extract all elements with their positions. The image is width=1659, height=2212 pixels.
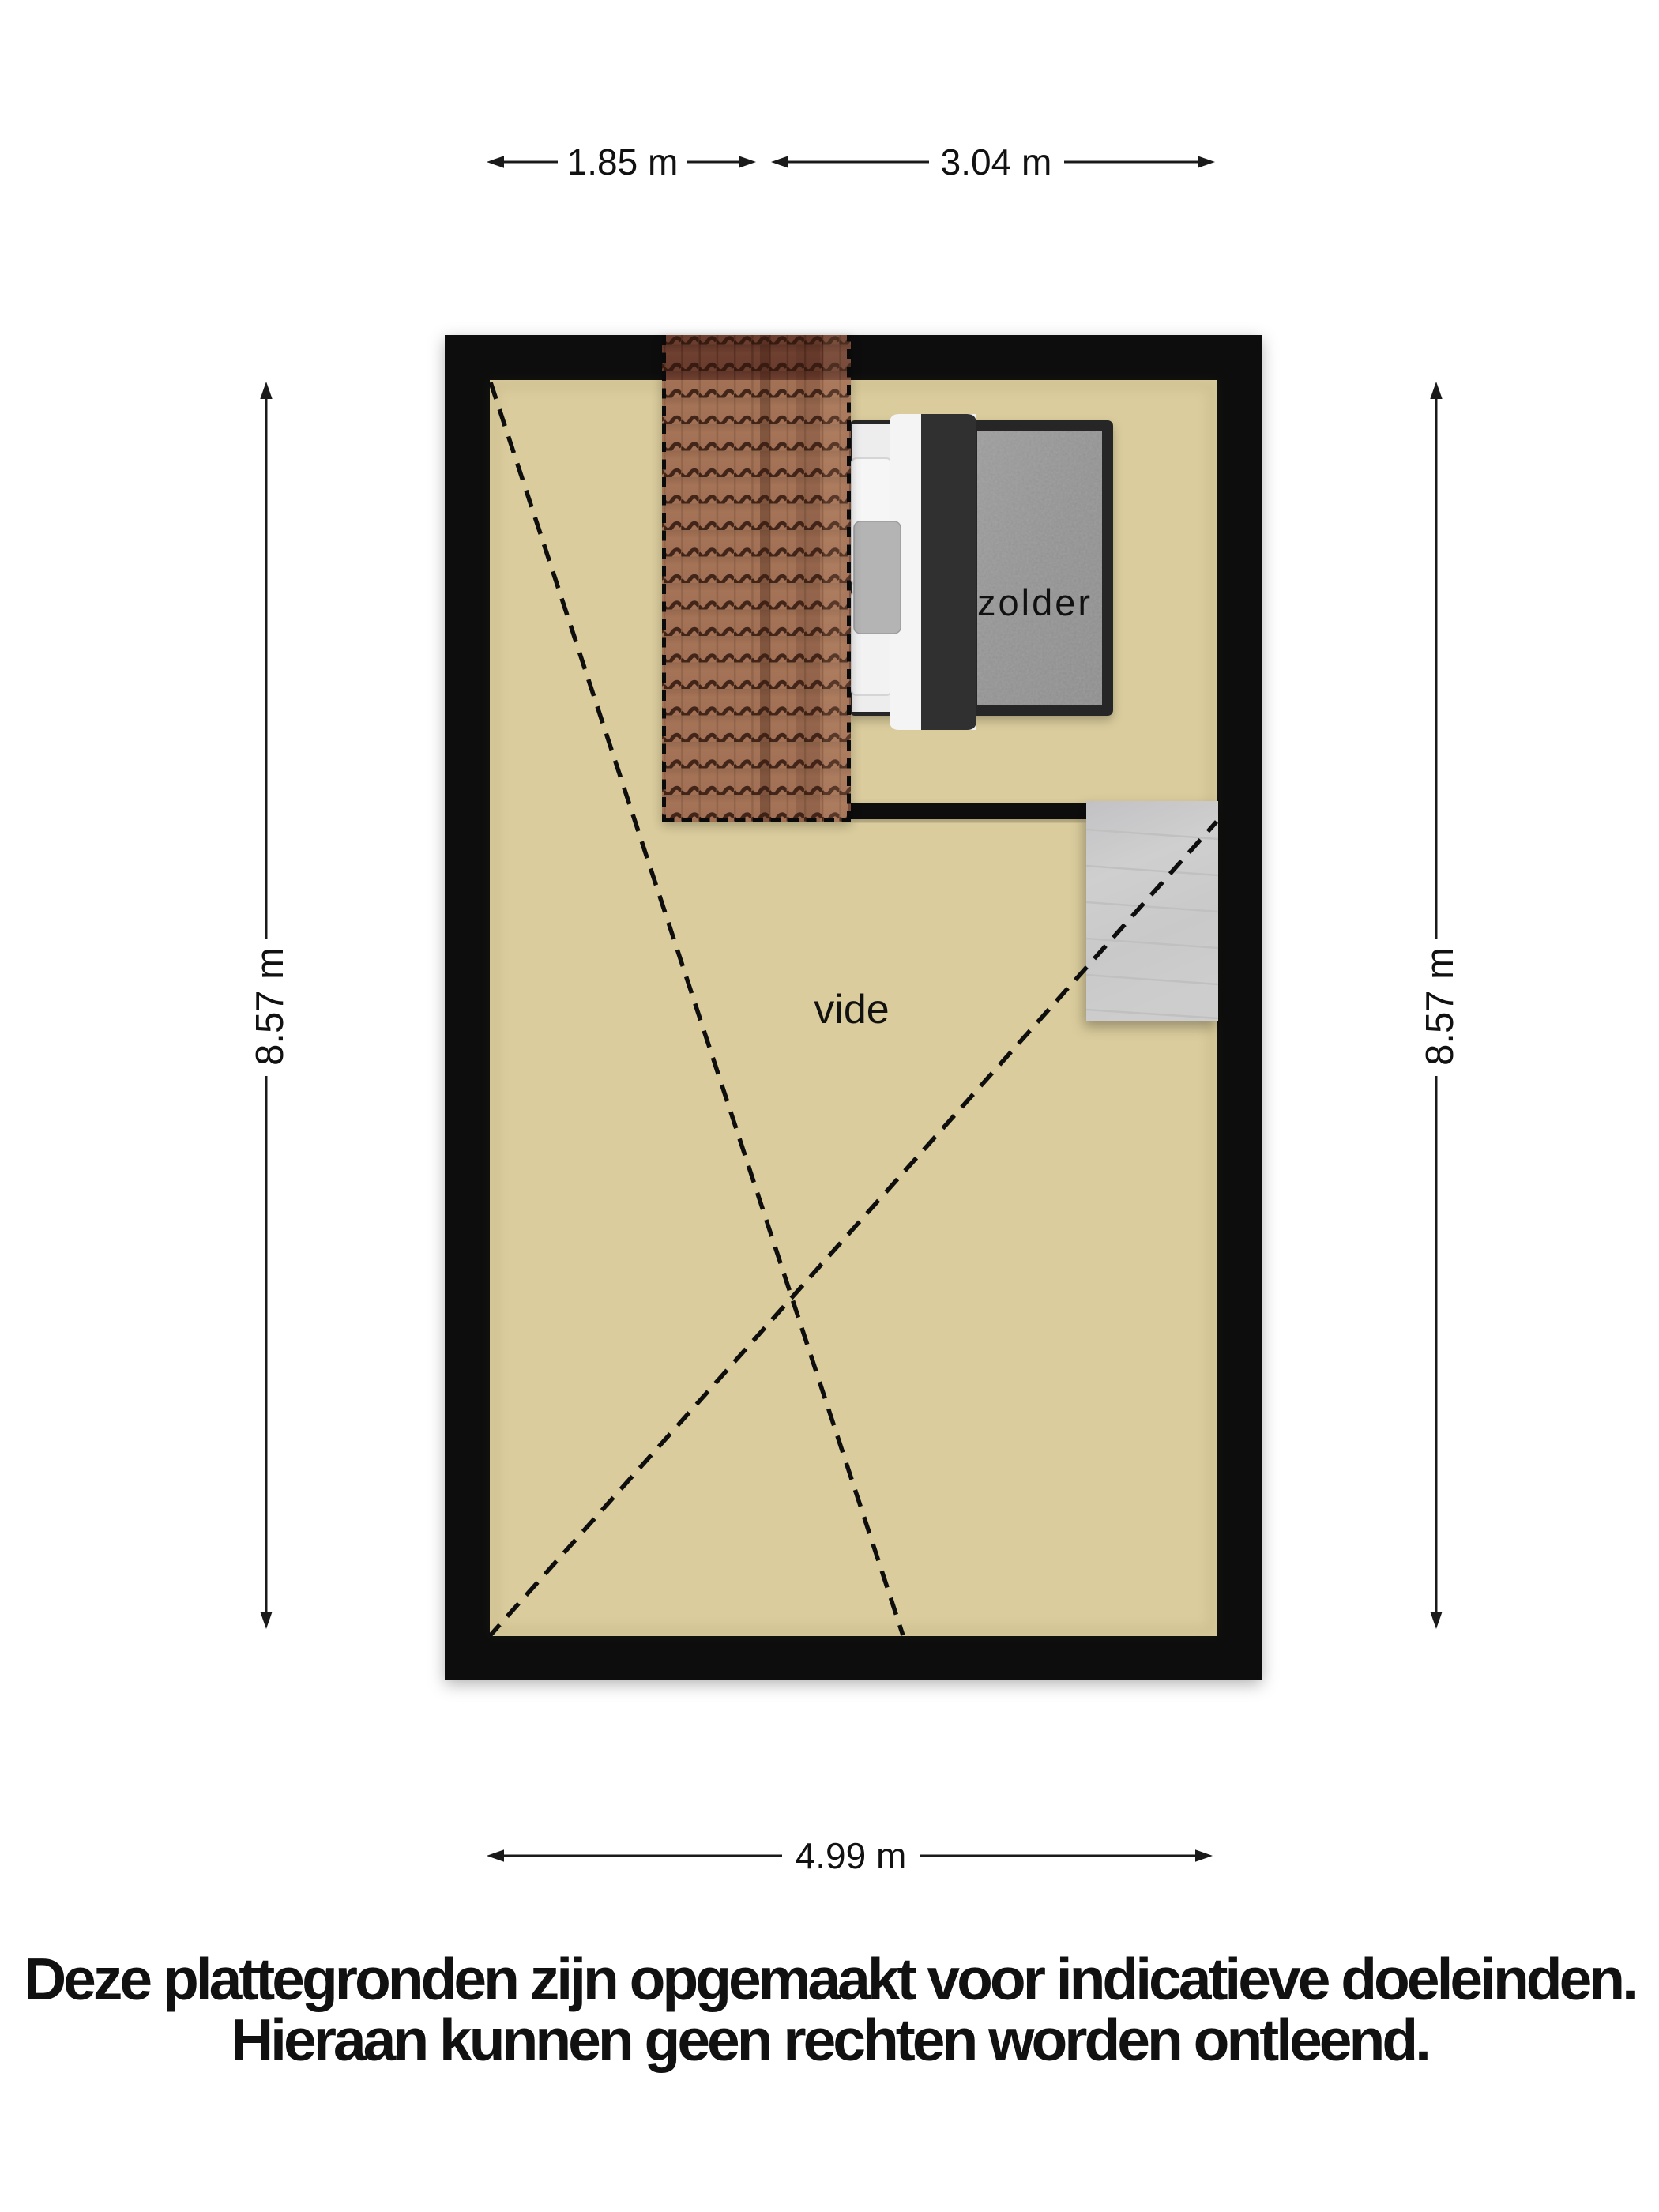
svg-text:4.99 m: 4.99 m [796,1835,907,1876]
svg-text:8.57 m: 8.57 m [1419,947,1461,1066]
svg-text:3.04 m: 3.04 m [941,141,1052,182]
svg-text:Hieraan kunnen geen rechten wo: Hieraan kunnen geen rechten worden ontle… [231,2007,1428,2073]
svg-text:vide: vide [814,987,889,1033]
svg-text:Deze plattegronden zijn opgema: Deze plattegronden zijn opgemaakt voor i… [24,1946,1635,2012]
svg-text:zolder: zolder [977,581,1093,623]
svg-text:1.85 m: 1.85 m [567,141,679,182]
svg-text:8.57 m: 8.57 m [249,947,292,1066]
